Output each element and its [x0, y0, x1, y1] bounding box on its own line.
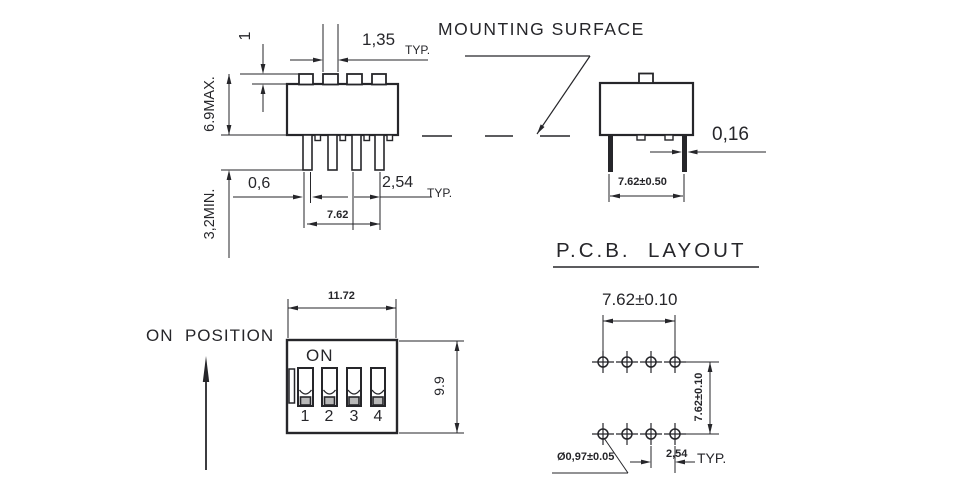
dim-body-height: 6.9MAX. — [202, 64, 218, 144]
dim-hole-diameter: Ø0,97±0.05 — [557, 452, 614, 463]
on-position-label: ON POSITION — [146, 327, 274, 344]
dim-actuator-width: 1,35 — [362, 31, 395, 48]
side-view-body — [287, 84, 398, 135]
dim-hole-pitch-typ: TYP. — [697, 451, 726, 465]
dim-lead-pitch: 2,54 — [382, 175, 413, 191]
dim-row-spacing: 7.62 — [327, 210, 348, 221]
dim-pcb-column-span: 7.62±0.10 — [602, 291, 678, 308]
on-position-arrow — [203, 356, 209, 470]
front-view-on-label: ON — [306, 347, 334, 364]
dim-lead-width: 0,6 — [248, 176, 270, 192]
end-view-body — [600, 83, 693, 135]
end-view — [600, 74, 693, 173]
drawing-linework — [0, 0, 960, 488]
pcb-layout-heading: P.C.B. LAYOUT — [556, 241, 747, 262]
dim-pcb-row-span: 7.62±0.10 — [692, 364, 706, 430]
dim-actuator-width-typ: TYP. — [405, 44, 430, 56]
dim-front-height: 9.9 — [431, 366, 447, 406]
dim-front-width: 11.72 — [328, 291, 355, 302]
dim-lead-length: 3,2MIN. — [202, 174, 218, 254]
side-view-dimensions — [221, 24, 432, 258]
pcb-holes — [592, 351, 686, 445]
dip-switch-technical-drawing: MOUNTING SURFACE P.C.B. LAYOUT ON POSITI… — [0, 0, 960, 488]
dim-lead-span: 7.62±0.50 — [618, 177, 667, 188]
pcb-layout-view — [592, 351, 686, 445]
dim-lead-pitch-typ: TYP. — [427, 187, 452, 199]
mounting-surface-label: MOUNTING SURFACE — [438, 21, 645, 39]
dim-lead-thickness: 0,16 — [712, 125, 749, 144]
switch-number-1: 1 — [297, 409, 313, 425]
side-view — [287, 74, 398, 170]
switch-number-2: 2 — [321, 409, 337, 425]
dim-hole-pitch: 2,54 — [666, 449, 687, 460]
switch-number-4: 4 — [370, 409, 386, 425]
dim-actuator-height: 1 — [237, 26, 255, 46]
mounting-surface-callout — [422, 56, 590, 136]
switch-number-3: 3 — [346, 409, 362, 425]
front-view-side-mark — [289, 369, 295, 403]
end-view-top-tab — [639, 74, 653, 84]
